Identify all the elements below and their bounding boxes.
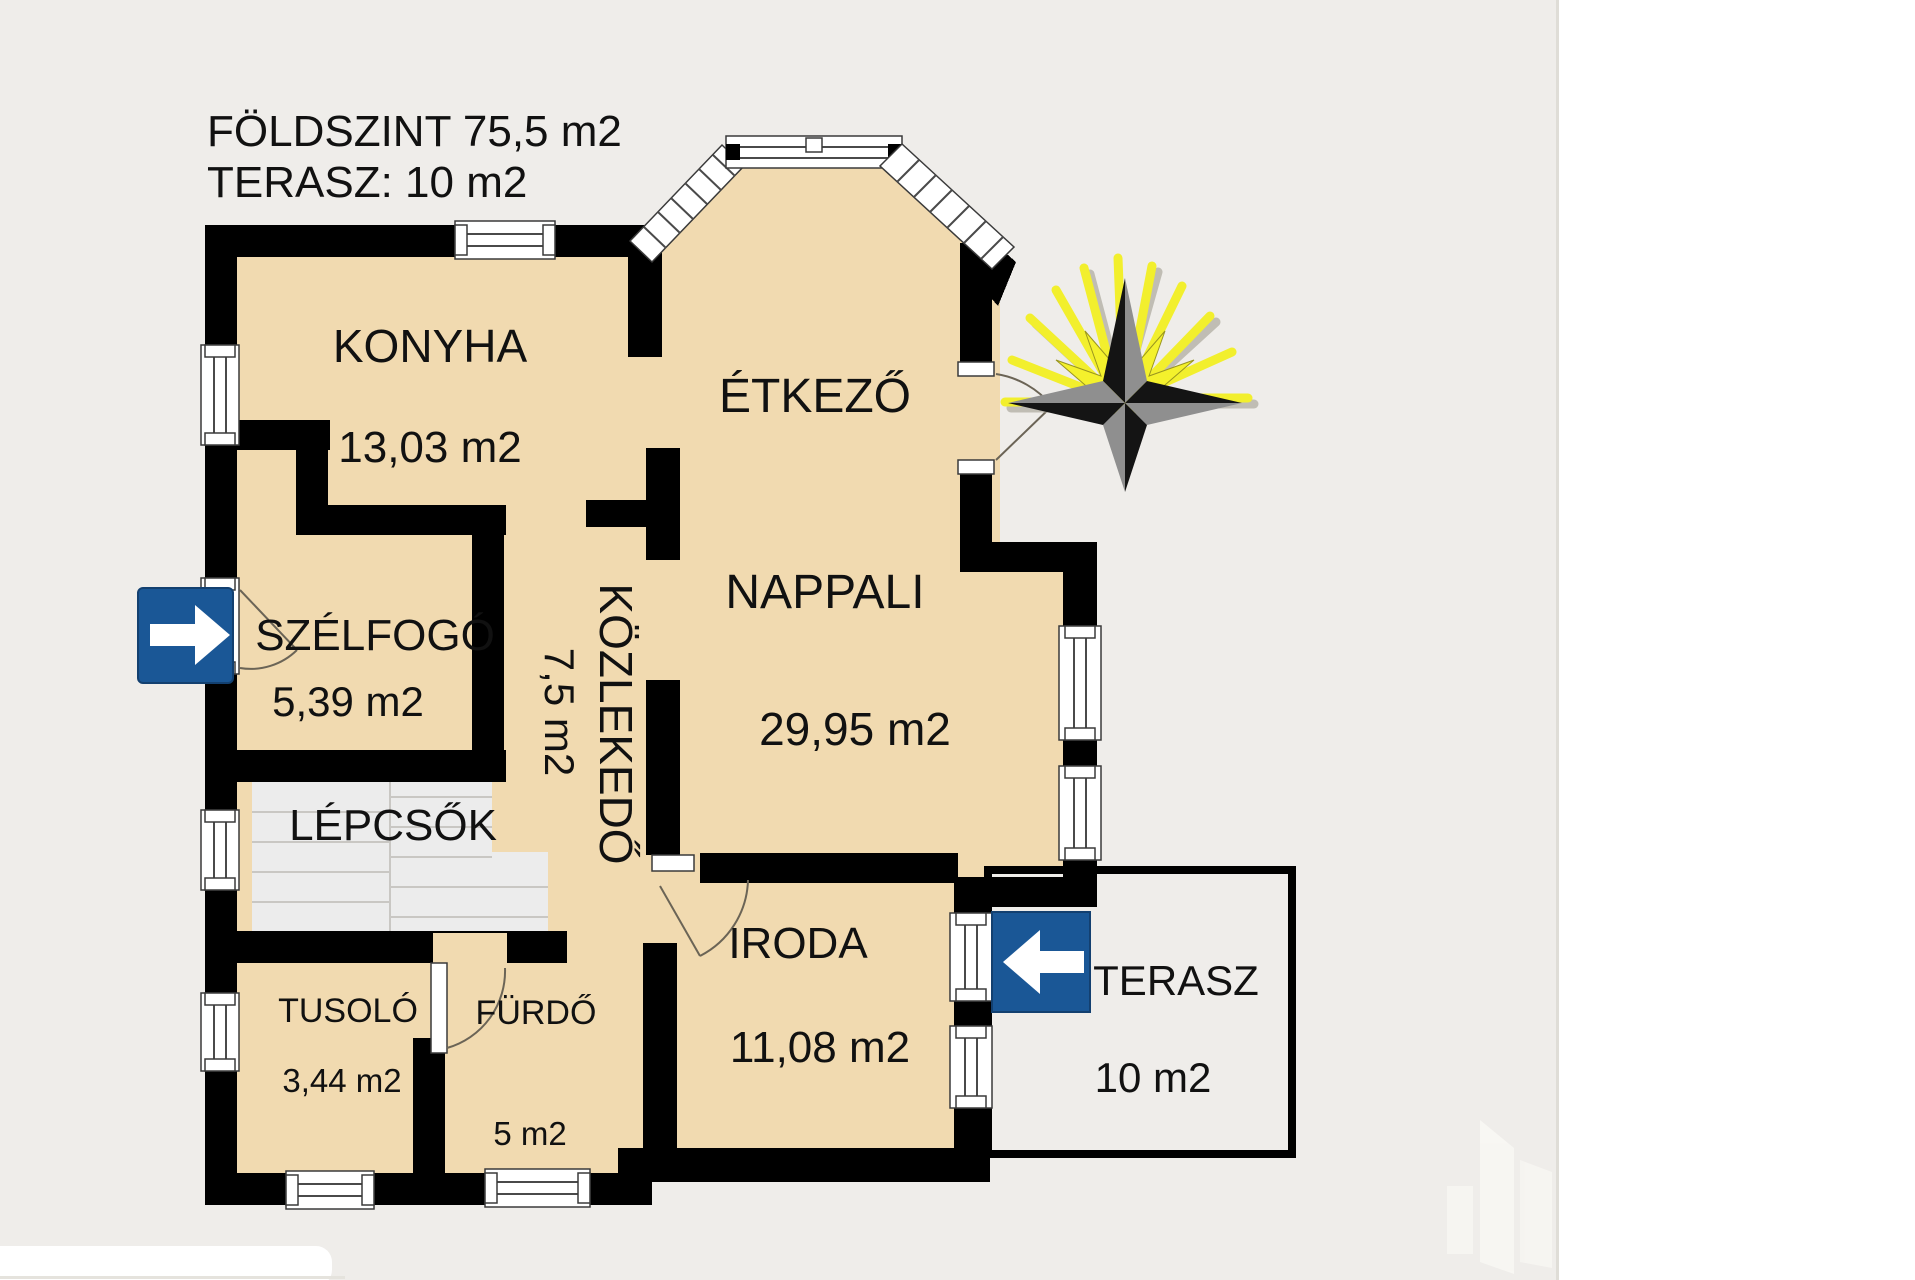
room-area-tusolo: 3,44 m2 [282,1062,401,1099]
window-konyha-top [455,221,555,259]
iroda-door [652,855,694,871]
room-area-iroda: 11,08 m2 [730,1023,910,1072]
terrace-arrow-icon [992,912,1090,1012]
etkezo-side-door [958,374,996,464]
plan-title-line1: FÖLDSZINT 75,5 m2 [207,107,622,156]
room-area-kozlekedo: 7,5 m2 [536,648,583,776]
plan-title-line2: TERASZ: 10 m2 [207,158,527,207]
window-tusolo-bottom [286,1171,374,1209]
window-nappali-right-1 [1059,626,1101,740]
room-area-terasz: 10 m2 [1095,1054,1212,1101]
room-label-konyha: KONYHA [333,320,528,372]
room-label-furdo: FÜRDŐ [476,994,597,1032]
room-area-konyha: 13,03 m2 [338,423,521,472]
room-label-terasz: TERASZ [1093,957,1259,1004]
window-iroda-right-1 [950,913,992,1001]
room-label-nappali: NAPPALI [725,566,924,619]
room-label-kozlekedo: KÖZLEKEDŐ [590,583,642,864]
room-label-iroda: IRODA [728,919,868,968]
window-furdo-bottom [485,1169,590,1207]
room-label-szelfogo: SZÉLFOGÓ [255,611,495,660]
background-divider-line [1556,0,1559,1280]
furdo-door [433,933,507,963]
room-area-nappali: 29,95 m2 [759,703,951,755]
room-area-szelfogo: 5,39 m2 [272,678,424,725]
floor-plan-drawing: FÖLDSZINT 75,5 m2 TERASZ: 10 m2 [0,0,1915,1280]
bottom-strip [0,1246,345,1280]
room-label-etkezo: ÉTKEZŐ [719,370,911,423]
room-label-tusolo: TUSOLÓ [278,992,418,1030]
window-konyha-left [201,345,239,445]
room-area-furdo: 5 m2 [493,1115,566,1152]
room-label-lepcsok: LÉPCSŐK [289,801,497,850]
window-nappali-right-2 [1059,766,1101,860]
entrance-arrow-icon [138,588,233,683]
floor-plan-page: FÖLDSZINT 75,5 m2 TERASZ: 10 m2 [0,0,1915,1280]
